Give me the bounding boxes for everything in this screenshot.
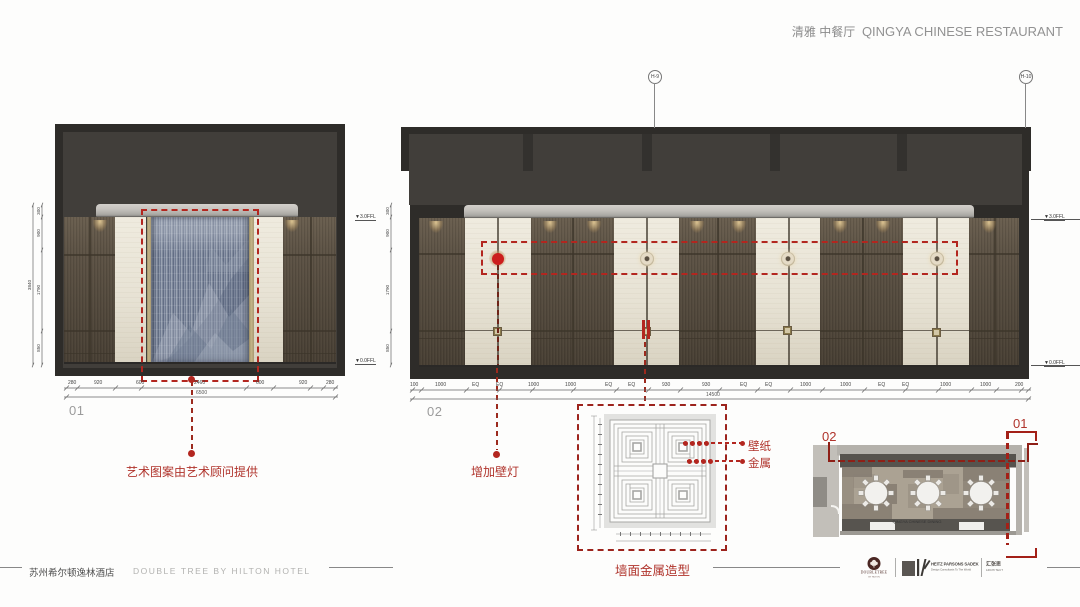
svg-text:300: 300 [385,207,390,215]
svg-text:900: 900 [36,229,41,237]
svg-text:1790: 1790 [36,284,41,295]
svg-text:300: 300 [36,207,41,215]
svg-text:850: 850 [385,344,390,352]
svg-text:DOUBLETREE: DOUBLETREE [861,571,888,575]
svg-text:汇张思: 汇张思 [986,561,1001,568]
svg-text:850: 850 [36,344,41,352]
svg-text:900: 900 [385,229,390,237]
svg-text:1790: 1790 [385,284,390,295]
svg-text:Design Consultants To The Worl: Design Consultants To The World [931,568,971,572]
svg-text:BY HILTON: BY HILTON [868,577,880,579]
svg-text:QINGYA CHINESE DINING: QINGYA CHINESE DINING [892,519,941,524]
svg-text:HEITZ PARSONS SADEK: HEITZ PARSONS SADEK [931,562,979,567]
svg-text:3840: 3840 [27,279,32,290]
svg-text:ARCHITECT: ARCHITECT [986,569,1003,572]
